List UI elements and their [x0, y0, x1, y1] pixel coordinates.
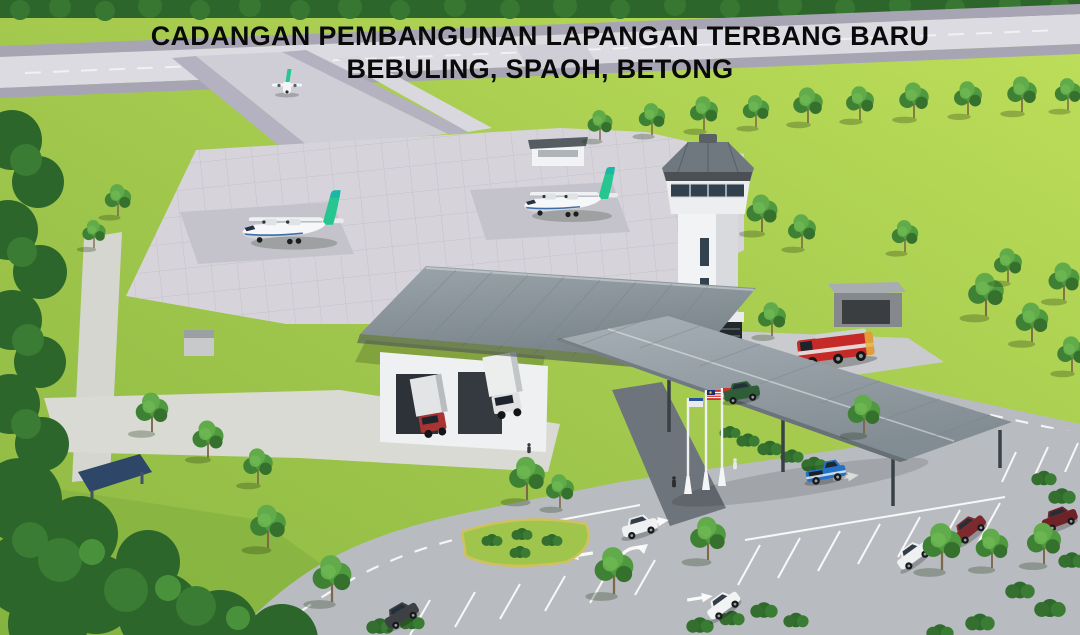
garage-door — [842, 300, 890, 324]
fire-truck-cab-window — [800, 341, 813, 351]
person — [527, 443, 530, 453]
airport-rendering: CADANGAN PEMBANGUNAN LAPANGAN TERBANG BA… — [0, 0, 1080, 635]
tower-window — [700, 238, 709, 266]
person — [672, 476, 676, 487]
landscape-island — [462, 520, 589, 566]
loading-dock — [380, 352, 548, 452]
apron-building — [528, 137, 588, 166]
person — [733, 458, 737, 469]
rendered-scene — [0, 0, 1080, 635]
flag-malaysia — [707, 390, 723, 400]
fire-garage — [828, 282, 906, 327]
holding-bay — [516, 42, 598, 70]
